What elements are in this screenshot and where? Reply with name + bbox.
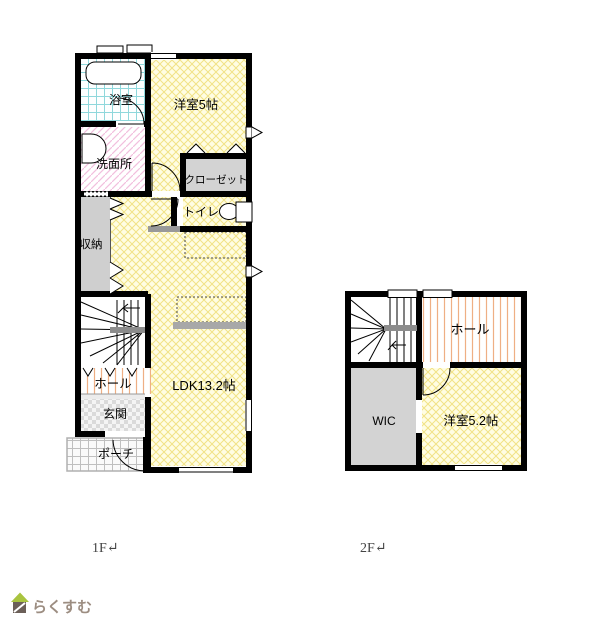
window-top-left bbox=[127, 45, 152, 53]
western-door-gap bbox=[152, 191, 180, 197]
label-western-f2: 洋室5.2帖 bbox=[444, 413, 499, 428]
toilet-threshold bbox=[148, 226, 180, 232]
kitchen-counter bbox=[173, 322, 252, 329]
wic-opening bbox=[416, 400, 422, 433]
vent-western-icon bbox=[246, 127, 252, 138]
label-hall-f2: ホール bbox=[450, 322, 489, 337]
floor1-plan: 浴室 洗面所 収納 洋室5帖 クローゼット トイレ LDK13.2帖 ホール 玄… bbox=[67, 45, 262, 474]
stairs-f1-landing bbox=[110, 327, 145, 333]
label-hall-f1: ホール bbox=[94, 377, 132, 391]
floor2-plan: ホール WIC 洋室5.2帖 bbox=[345, 290, 527, 472]
bathtub-icon bbox=[86, 62, 141, 84]
label-closet: クローゼット bbox=[185, 174, 248, 186]
entrance-step bbox=[81, 394, 145, 399]
label-wic: WIC bbox=[372, 414, 396, 428]
western-f2-door-gap bbox=[423, 362, 450, 368]
label-washroom: 洗面所 bbox=[96, 157, 132, 171]
logo-house-icon bbox=[11, 593, 29, 614]
entrance-door-gap bbox=[105, 431, 145, 437]
label-western-f1: 洋室5帖 bbox=[174, 97, 218, 112]
floorplan-svg: 浴室 洗面所 収納 洋室5帖 クローゼット トイレ LDK13.2帖 ホール 玄… bbox=[0, 0, 603, 619]
label-storage: 収納 bbox=[80, 238, 103, 251]
label-bath: 浴室 bbox=[109, 92, 133, 107]
label-ldk: LDK13.2帖 bbox=[172, 378, 236, 393]
floor2-caption: 2F↵ bbox=[360, 541, 387, 556]
label-porch: ポーチ bbox=[98, 447, 134, 461]
logo-text: らくすむ bbox=[32, 599, 92, 616]
label-entrance: 玄関 bbox=[103, 406, 127, 421]
toilet-icon bbox=[220, 202, 253, 222]
stairs-f2-landing bbox=[384, 325, 417, 331]
floor1-caption: 1F↵ bbox=[92, 541, 119, 556]
window-top-bath bbox=[97, 46, 123, 53]
floorplan-canvas: 浴室 洗面所 収納 洋室5帖 クローゼット トイレ LDK13.2帖 ホール 玄… bbox=[0, 0, 603, 619]
vent-ldk-arrow-icon bbox=[252, 266, 262, 277]
vent-western-arrow-icon bbox=[252, 127, 262, 138]
room-ldk bbox=[151, 197, 246, 466]
window-top-stairs-f2 bbox=[388, 290, 417, 298]
window-top-hall-f2 bbox=[423, 290, 452, 298]
vent-ldk-icon bbox=[246, 266, 252, 277]
logo: らくすむ bbox=[11, 593, 92, 617]
label-toilet: トイレ bbox=[183, 205, 219, 219]
